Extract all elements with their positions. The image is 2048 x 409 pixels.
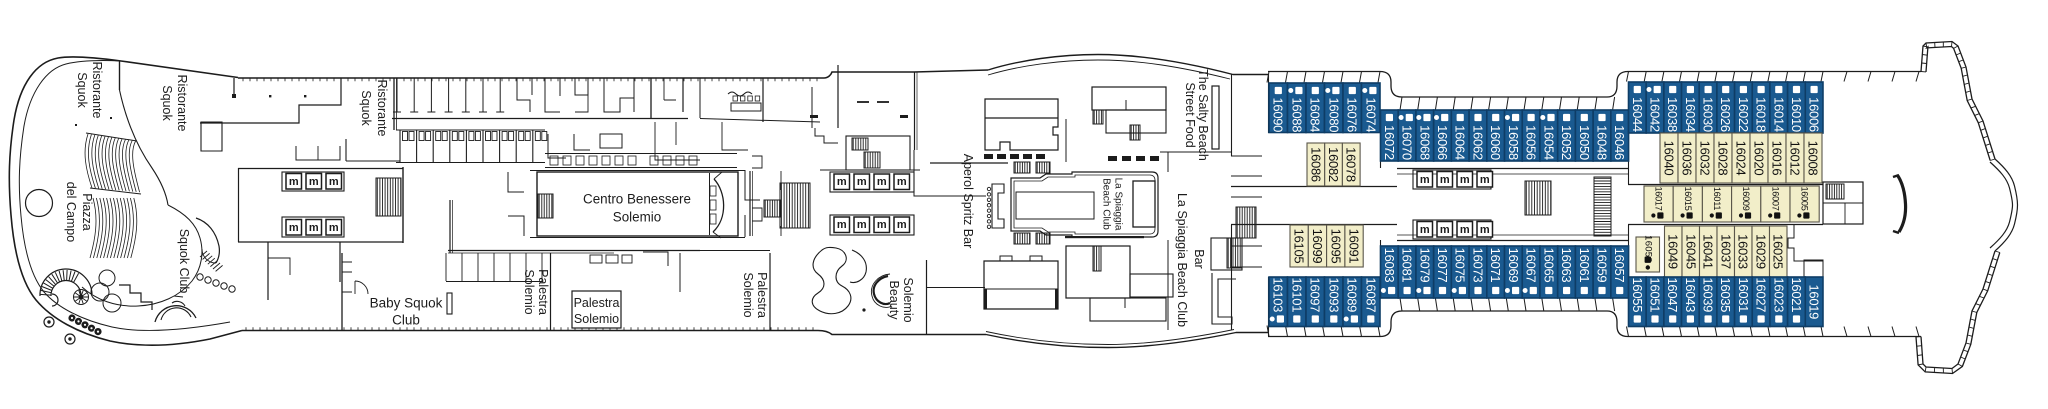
svg-text:16015: 16015 [1683, 186, 1693, 210]
svg-text:16016: 16016 [1770, 141, 1785, 176]
svg-text:16035: 16035 [1718, 277, 1733, 312]
svg-text:16055: 16055 [1630, 277, 1645, 312]
svg-text:16075: 16075 [1453, 248, 1468, 283]
svg-text:16025: 16025 [1771, 234, 1786, 269]
svg-text:m: m [1480, 224, 1490, 236]
svg-text:16042: 16042 [1648, 97, 1663, 132]
svg-text:16030: 16030 [1701, 97, 1716, 132]
svg-text:m: m [1420, 224, 1430, 236]
svg-text:16050: 16050 [1577, 125, 1592, 160]
svg-text:Solemio: Solemio [522, 269, 536, 314]
svg-text:16053: 16053 [1642, 235, 1653, 263]
svg-text:Ristorante: Ristorante [90, 62, 104, 119]
svg-text:16026: 16026 [1718, 97, 1733, 132]
svg-text:16038: 16038 [1665, 97, 1680, 132]
svg-text:16056: 16056 [1524, 125, 1539, 160]
svg-text:m: m [837, 176, 847, 188]
svg-text:m: m [329, 176, 339, 188]
svg-text:16037: 16037 [1718, 234, 1733, 269]
svg-text:del Campo: del Campo [64, 182, 78, 242]
svg-text:16044: 16044 [1630, 97, 1645, 132]
svg-text:16069: 16069 [1506, 248, 1521, 283]
svg-text:16032: 16032 [1698, 141, 1713, 176]
svg-text:Baby Squok: Baby Squok [370, 296, 443, 311]
svg-text:16048: 16048 [1595, 125, 1610, 160]
svg-text:16022: 16022 [1736, 97, 1751, 132]
svg-text:16045: 16045 [1683, 234, 1698, 269]
svg-text:16023: 16023 [1771, 277, 1786, 312]
svg-text:Squok: Squok [75, 72, 89, 108]
svg-text:m: m [309, 222, 319, 234]
svg-text:16018: 16018 [1754, 97, 1769, 132]
svg-text:m: m [837, 219, 847, 231]
svg-text:m: m [1460, 224, 1470, 236]
svg-text:16082: 16082 [1326, 147, 1341, 182]
svg-text:16031: 16031 [1736, 277, 1751, 312]
svg-text:16041: 16041 [1701, 234, 1716, 269]
svg-text:16074: 16074 [1363, 97, 1378, 132]
svg-text:16010: 16010 [1789, 97, 1804, 132]
svg-text:m: m [877, 219, 887, 231]
svg-text:Beauty: Beauty [887, 281, 901, 321]
svg-text:16089: 16089 [1345, 277, 1360, 312]
svg-text:The Salty Beach: The Salty Beach [1196, 69, 1210, 161]
svg-text:Club: Club [392, 313, 420, 328]
svg-text:16047: 16047 [1665, 277, 1680, 312]
svg-text:m: m [897, 176, 907, 188]
svg-text:16095: 16095 [1328, 229, 1343, 264]
svg-text:16049: 16049 [1666, 234, 1681, 269]
svg-text:16009: 16009 [1741, 186, 1751, 210]
svg-text:16039: 16039 [1701, 277, 1716, 312]
svg-text:m: m [857, 176, 867, 188]
svg-text:16052: 16052 [1559, 125, 1574, 160]
svg-text:16086: 16086 [1308, 147, 1323, 182]
svg-text:16076: 16076 [1345, 97, 1360, 132]
svg-text:16020: 16020 [1752, 141, 1767, 176]
svg-text:16073: 16073 [1471, 248, 1486, 283]
svg-text:Centro Benessere: Centro Benessere [583, 192, 691, 207]
svg-text:Palestra: Palestra [574, 296, 620, 310]
svg-text:16097: 16097 [1308, 277, 1323, 312]
svg-text:m: m [1440, 174, 1450, 186]
svg-text:Beach Club: Beach Club [1101, 178, 1112, 230]
svg-text:Squok: Squok [359, 90, 373, 126]
svg-text:m: m [1440, 224, 1450, 236]
svg-text:16087: 16087 [1363, 277, 1378, 312]
svg-text:m: m [289, 222, 299, 234]
svg-text:16070: 16070 [1400, 125, 1415, 160]
svg-text:m: m [1480, 174, 1490, 186]
svg-text:16063: 16063 [1559, 248, 1574, 283]
svg-text:m: m [877, 176, 887, 188]
svg-text:Street Food: Street Food [1183, 82, 1197, 147]
svg-text:16080: 16080 [1326, 97, 1341, 132]
svg-text:16024: 16024 [1734, 141, 1749, 176]
svg-text:16021: 16021 [1789, 277, 1804, 312]
svg-text:16090: 16090 [1271, 97, 1286, 132]
svg-text:m: m [289, 176, 299, 188]
svg-text:16078: 16078 [1344, 147, 1359, 182]
svg-text:16077: 16077 [1435, 248, 1450, 283]
svg-text:16062: 16062 [1471, 125, 1486, 160]
svg-text:16091: 16091 [1347, 229, 1362, 264]
svg-text:Solemio: Solemio [901, 277, 915, 322]
svg-text:16006: 16006 [1807, 97, 1822, 132]
svg-text:m: m [897, 219, 907, 231]
svg-text:m: m [857, 219, 867, 231]
svg-text:16040: 16040 [1662, 141, 1677, 176]
svg-text:16101: 16101 [1289, 277, 1304, 312]
svg-text:16068: 16068 [1417, 125, 1432, 160]
svg-text:16066: 16066 [1435, 125, 1450, 160]
svg-text:16081: 16081 [1400, 248, 1415, 283]
svg-text:m: m [1420, 174, 1430, 186]
svg-text:16014: 16014 [1771, 97, 1786, 132]
svg-text:La Spiaggia Beach Club: La Spiaggia Beach Club [1175, 193, 1189, 327]
svg-text:Palestra: Palestra [536, 269, 550, 315]
svg-text:16033: 16033 [1736, 234, 1751, 269]
svg-text:16058: 16058 [1506, 125, 1521, 160]
svg-text:Squok Club: Squok Club [177, 229, 191, 294]
svg-text:16043: 16043 [1683, 277, 1698, 312]
svg-text:16065: 16065 [1541, 248, 1556, 283]
svg-text:Solemio: Solemio [574, 312, 619, 326]
svg-text:16017: 16017 [1654, 186, 1664, 210]
svg-text:La Spiaggia: La Spiaggia [1113, 178, 1124, 231]
svg-text:m: m [329, 222, 339, 234]
svg-text:16071: 16071 [1488, 248, 1503, 283]
svg-text:16028: 16028 [1716, 141, 1731, 176]
svg-text:16051: 16051 [1648, 277, 1663, 312]
svg-text:16019: 16019 [1807, 284, 1822, 319]
svg-text:16007: 16007 [1770, 186, 1780, 210]
svg-text:16088: 16088 [1289, 97, 1304, 132]
svg-text:Ristorante: Ristorante [175, 75, 189, 132]
svg-text:16029: 16029 [1753, 234, 1768, 269]
svg-text:Aperol Spritz Bar: Aperol Spritz Bar [961, 154, 975, 248]
svg-text:16061: 16061 [1577, 248, 1592, 283]
svg-text:16105: 16105 [1292, 229, 1307, 264]
svg-text:16060: 16060 [1488, 125, 1503, 160]
svg-text:Solemio: Solemio [741, 272, 755, 317]
svg-text:16054: 16054 [1541, 125, 1556, 160]
svg-text:16027: 16027 [1754, 277, 1769, 312]
svg-text:16034: 16034 [1683, 97, 1698, 132]
svg-text:16067: 16067 [1524, 248, 1539, 283]
svg-text:16093: 16093 [1326, 277, 1341, 312]
svg-text:m: m [1460, 174, 1470, 186]
svg-text:16046: 16046 [1612, 125, 1627, 160]
svg-text:16103: 16103 [1271, 277, 1286, 312]
svg-text:Bar: Bar [1192, 249, 1206, 268]
svg-text:16008: 16008 [1806, 141, 1821, 176]
svg-text:16012: 16012 [1788, 141, 1803, 176]
svg-text:16011: 16011 [1712, 187, 1722, 211]
svg-text:16084: 16084 [1308, 97, 1323, 132]
svg-text:16057: 16057 [1612, 248, 1627, 283]
svg-text:Palestra: Palestra [755, 272, 769, 318]
svg-text:Solemio: Solemio [613, 210, 661, 225]
svg-text:16099: 16099 [1310, 229, 1325, 264]
svg-text:Ristorante: Ristorante [375, 80, 389, 137]
svg-text:m: m [309, 176, 319, 188]
svg-text:16083: 16083 [1382, 248, 1397, 283]
svg-text:16036: 16036 [1680, 141, 1695, 176]
svg-text:16059: 16059 [1595, 248, 1610, 283]
svg-text:16079: 16079 [1417, 248, 1432, 283]
svg-text:16064: 16064 [1453, 125, 1468, 160]
svg-text:Squok: Squok [160, 85, 174, 121]
svg-text:16072: 16072 [1382, 125, 1397, 160]
svg-text:16005: 16005 [1800, 186, 1810, 210]
svg-text:Piazza: Piazza [80, 193, 94, 231]
